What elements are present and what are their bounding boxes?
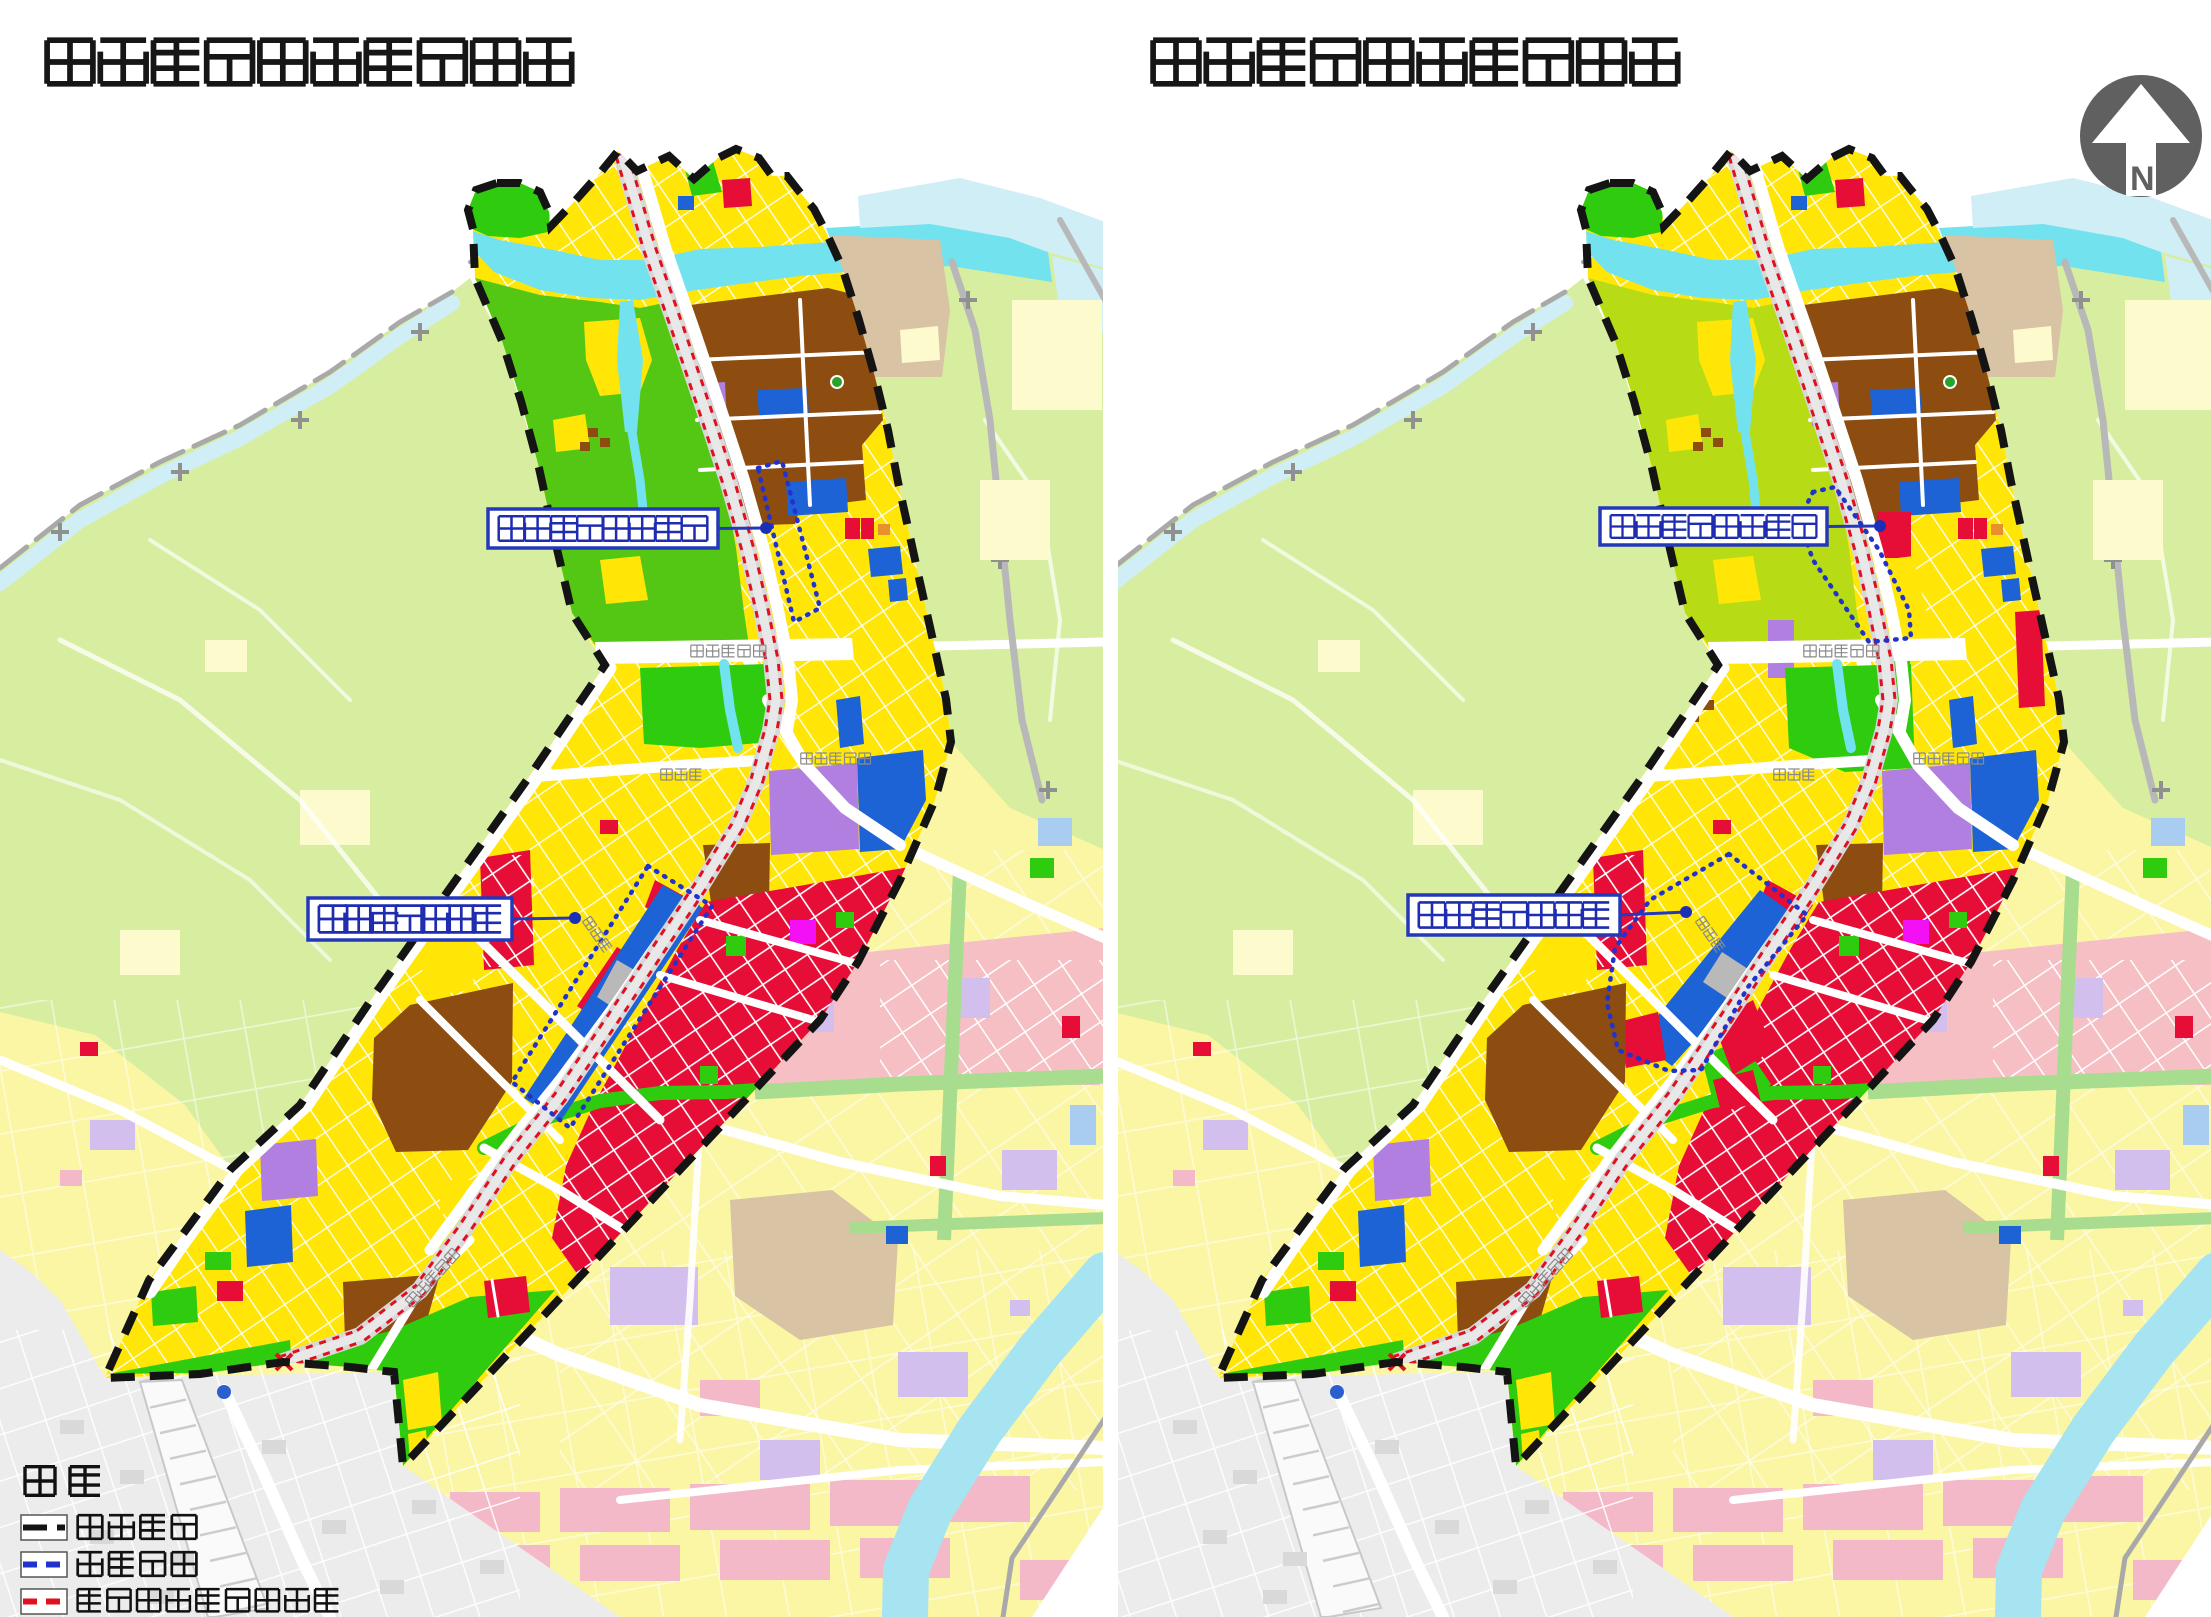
svg-text:N: N <box>2130 160 2155 198</box>
